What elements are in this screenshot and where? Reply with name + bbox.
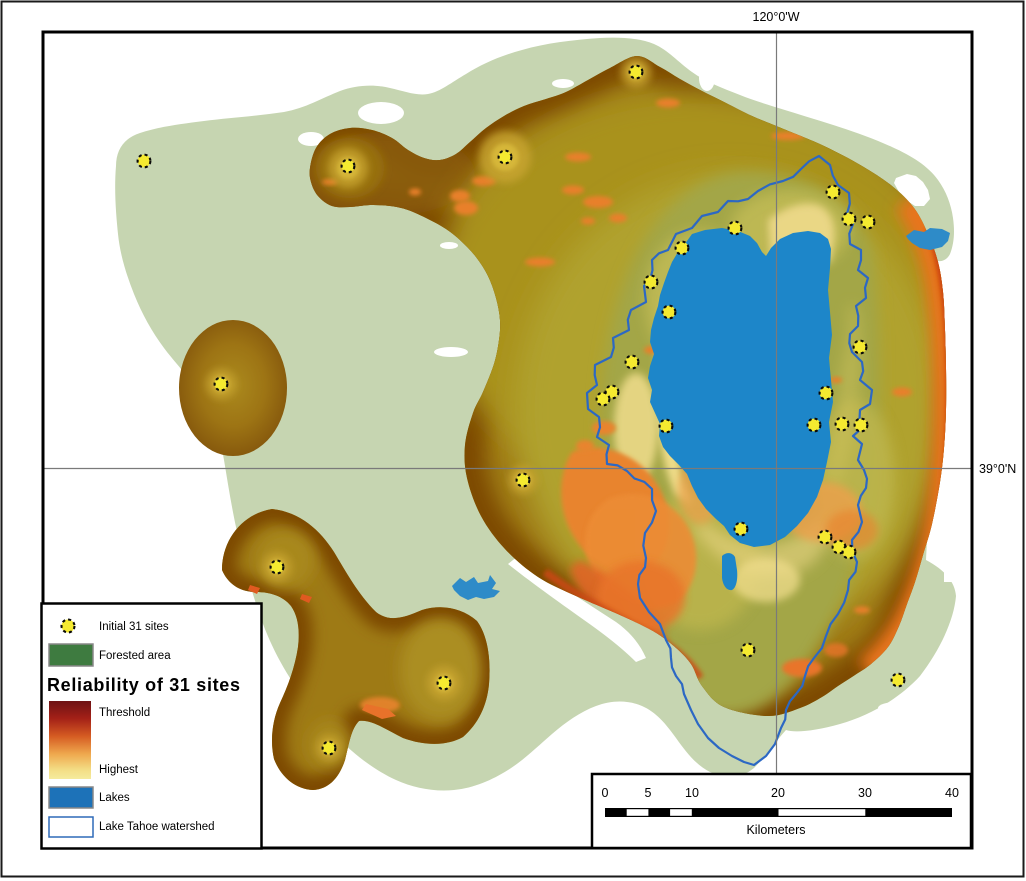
svg-text:39°0'N: 39°0'N [979,462,1016,476]
svg-text:120°0'W: 120°0'W [753,10,800,24]
svg-text:Lakes: Lakes [99,792,130,804]
svg-text:5: 5 [645,786,652,800]
svg-text:Highest: Highest [99,764,139,776]
svg-text:0: 0 [602,786,609,800]
svg-text:Kilometers: Kilometers [746,823,805,837]
svg-text:Reliability of 31 sites: Reliability of 31 sites [47,675,240,695]
svg-text:10: 10 [685,786,699,800]
svg-text:Initial 31 sites: Initial 31 sites [99,621,169,633]
svg-text:20: 20 [771,786,785,800]
svg-text:Forested area: Forested area [99,650,171,662]
svg-text:40: 40 [945,786,959,800]
svg-text:30: 30 [858,786,872,800]
svg-text:Threshold: Threshold [99,707,150,719]
svg-text:Lake Tahoe watershed: Lake Tahoe watershed [99,821,215,833]
